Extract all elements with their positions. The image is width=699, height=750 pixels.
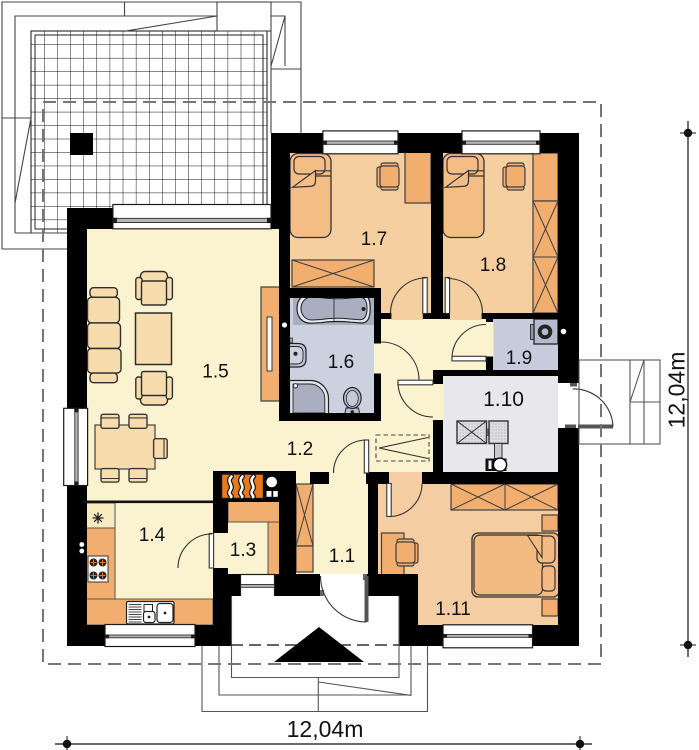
svg-text:1.3: 1.3 (230, 540, 256, 561)
svg-text:1.2: 1.2 (287, 439, 313, 460)
svg-text:1.8: 1.8 (480, 255, 506, 276)
svg-text:1.4: 1.4 (139, 525, 166, 546)
svg-text:1.11: 1.11 (435, 599, 471, 620)
svg-text:1.7: 1.7 (361, 229, 387, 250)
svg-text:1.1: 1.1 (329, 546, 355, 567)
svg-text:1.9: 1.9 (506, 348, 532, 369)
svg-text:1.6: 1.6 (328, 352, 354, 373)
svg-text:1.5: 1.5 (202, 362, 228, 383)
svg-text:12,04m: 12,04m (664, 352, 690, 429)
svg-text:12,04m: 12,04m (287, 716, 364, 742)
svg-text:1.10: 1.10 (483, 388, 524, 411)
